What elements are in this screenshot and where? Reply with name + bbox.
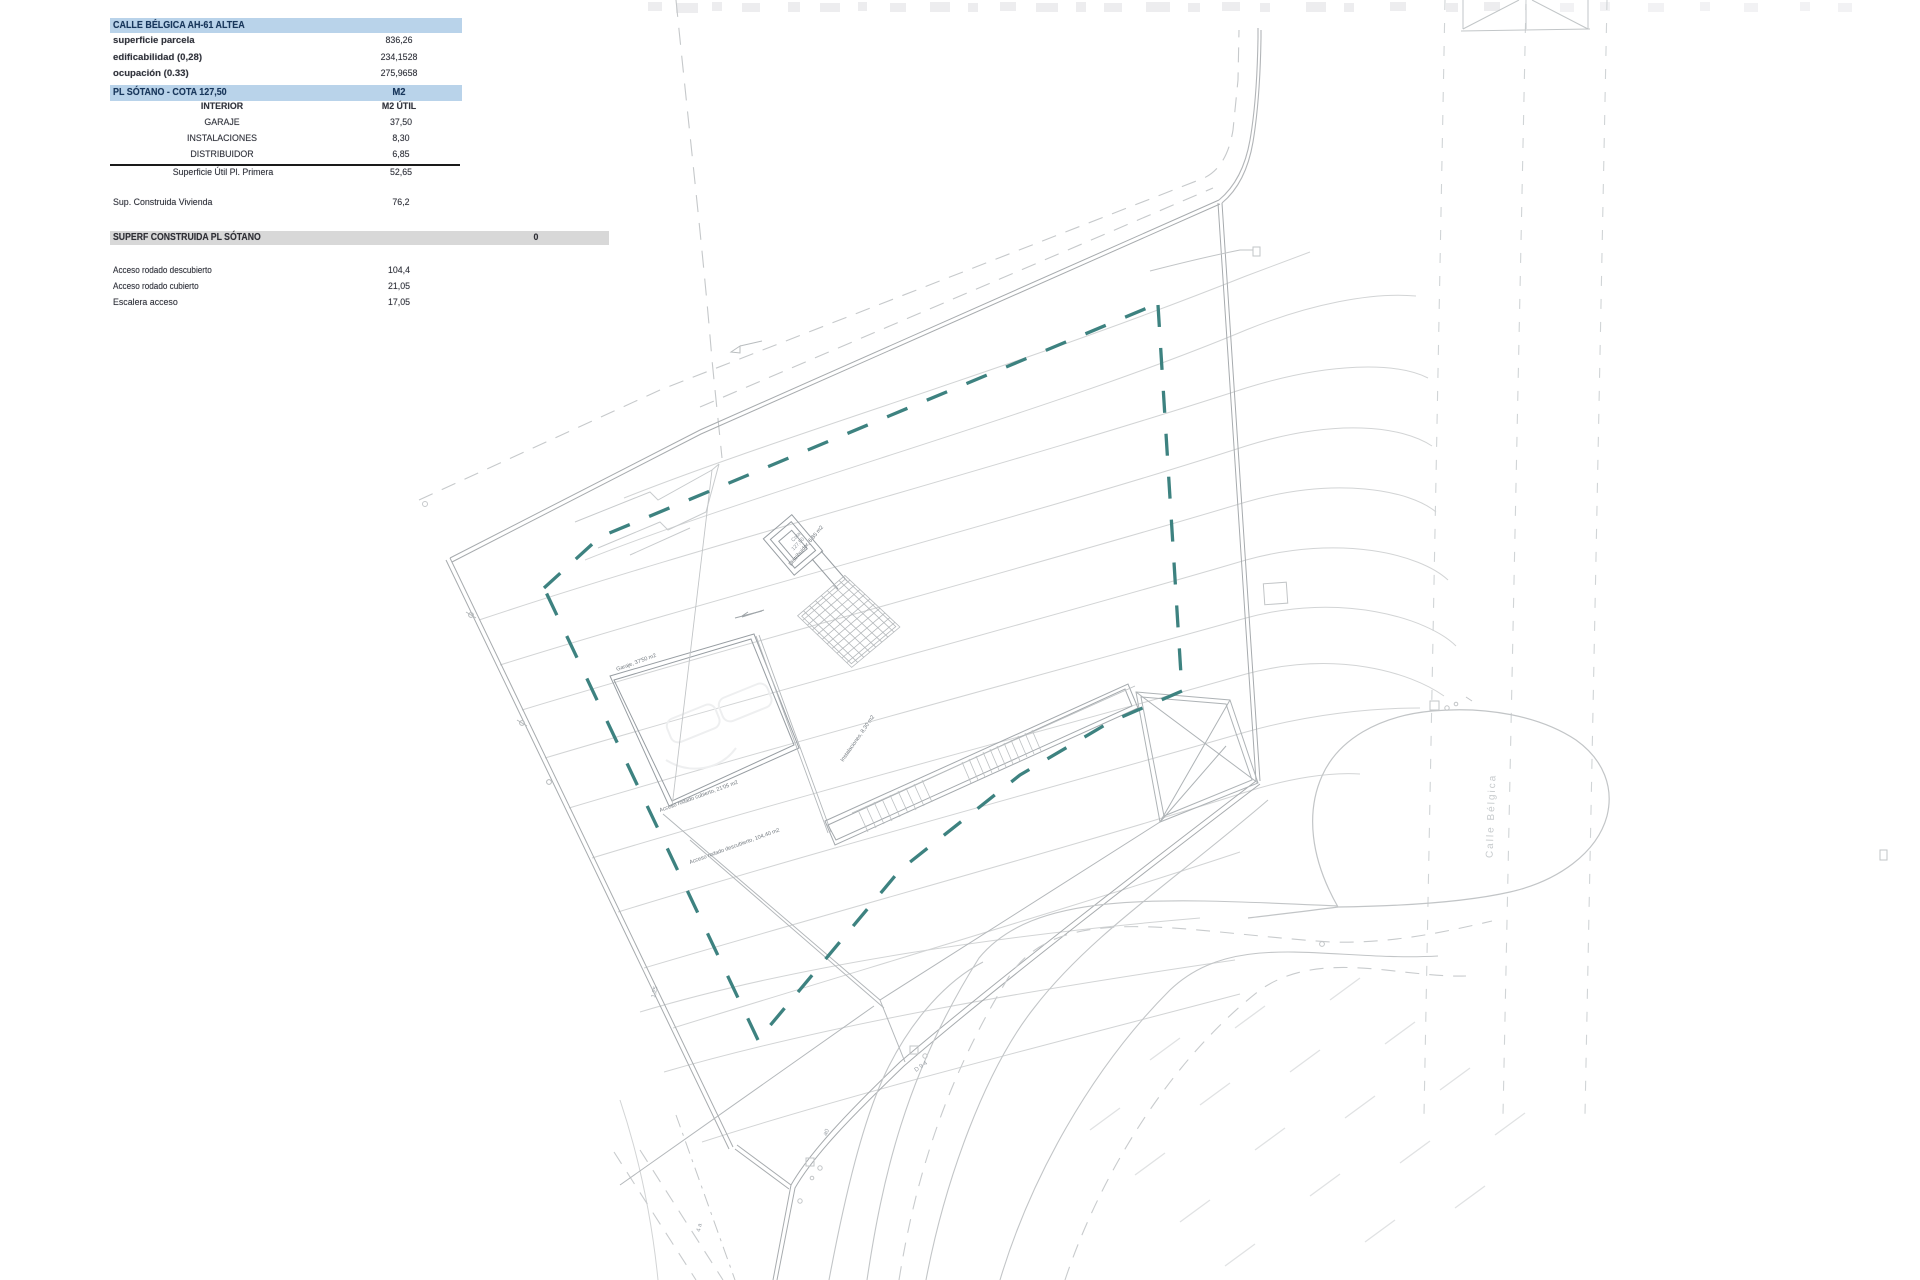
svg-text:a0: a0 — [823, 1128, 832, 1137]
svg-text:4 a: 4 a — [696, 1222, 704, 1232]
svg-text:Garaje, 37'50 m2: Garaje, 37'50 m2 — [616, 653, 658, 673]
svg-text:Instalaciones, 8,30 m2: Instalaciones, 8,30 m2 — [840, 715, 876, 764]
svg-text:Calle Bélgica: Calle Bélgica — [1485, 774, 1499, 859]
svg-text:Acceso rodado cubierto, 21'05: Acceso rodado cubierto, 21'05 m2 — [659, 780, 739, 814]
svg-text:Acceso rodado descubierto, 104: Acceso rodado descubierto, 104,40 m2 — [689, 828, 781, 866]
svg-text:1,25: 1,25 — [651, 985, 659, 998]
svg-text:D 9 4: D 9 4 — [914, 1060, 930, 1074]
